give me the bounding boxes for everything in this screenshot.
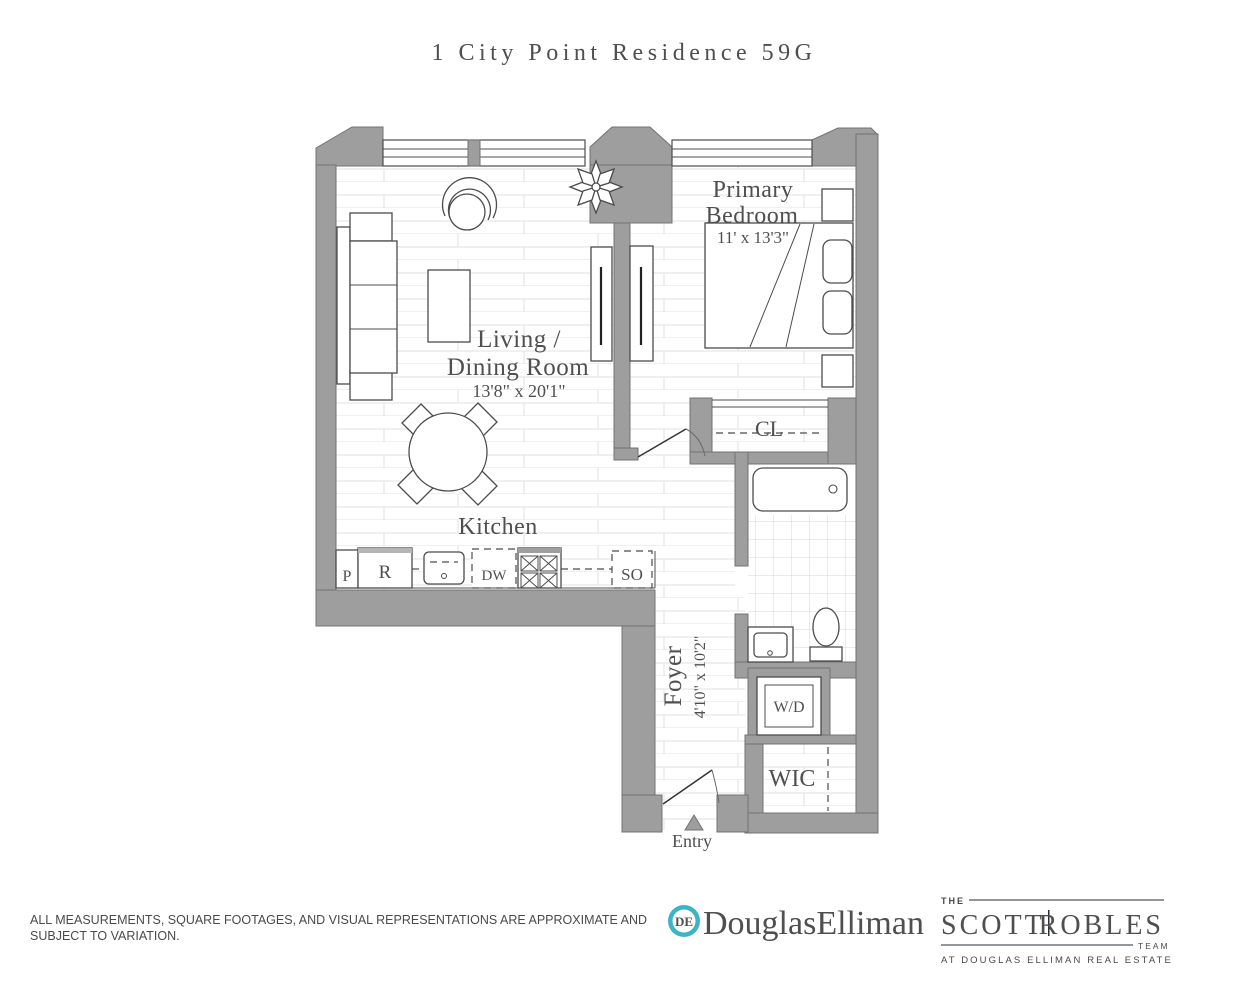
tv-console-living	[591, 247, 612, 361]
stove	[518, 548, 561, 588]
team-name-last: ROBLES	[1039, 910, 1164, 941]
toilet	[810, 608, 842, 661]
page-title: 1 City Point Residence 59G	[432, 40, 817, 66]
primary-bedroom-label-line1: Primary	[713, 177, 794, 203]
wall-living-bedroom-divider	[614, 223, 630, 448]
wall-kitchen-band	[316, 590, 655, 626]
disclaimer-line1: ALL MEASUREMENTS, SQUARE FOOTAGES, AND V…	[30, 913, 647, 927]
disclaimer-line2: SUBJECT TO VARIATION.	[30, 929, 180, 943]
wall-bedroom-door-stub	[614, 448, 638, 460]
living-room-window	[383, 140, 585, 166]
floor-plan-canvas: 1 City Point Residence 59G	[0, 0, 1249, 1000]
pillow	[823, 240, 852, 283]
team-name-first: SCOTT	[941, 910, 1045, 941]
living-dining-label-line2: Dining Room	[447, 354, 589, 381]
foyer-dims: 4'10" x 10'2"	[692, 636, 709, 719]
team-word: TEAM	[1138, 941, 1170, 951]
living-dining-label-line1: Living /	[477, 326, 561, 353]
dining-table	[409, 413, 487, 491]
refrigerator-label: R	[379, 562, 392, 583]
kitchen-sink	[424, 552, 464, 584]
douglas-elliman-logo: DE DouglasElliman	[668, 905, 924, 942]
plant-icon	[570, 161, 622, 213]
scott-robles-team-logo: THE SCOTT ROBLES TEAM AT DOUGLAS ELLIMAN…	[941, 896, 1173, 966]
wall-wic-bottom	[745, 813, 878, 833]
living-dining-dims: 13'8" x 20'1"	[472, 381, 565, 401]
wall-entry-jamb-left	[622, 795, 662, 832]
tv-console-bedroom	[630, 246, 653, 361]
wall-bathroom-left-upper	[735, 452, 748, 566]
closet-label: CL	[755, 416, 783, 441]
dishwasher-label: DW	[482, 568, 508, 584]
team-the: THE	[941, 896, 965, 906]
douglas-elliman-monogram: DE	[675, 914, 693, 929]
wall-right	[856, 134, 878, 833]
primary-bedroom-label-line2: Bedroom	[706, 203, 799, 229]
wic-label: WIC	[769, 766, 816, 792]
closet-opening-header	[712, 400, 828, 407]
wall-entry-jamb-right	[717, 795, 748, 832]
bathroom-sink	[748, 627, 793, 662]
sofa	[337, 213, 397, 400]
stove-oven-label: SO	[621, 565, 643, 584]
wall-top-left-corner	[316, 127, 383, 166]
pillow	[823, 291, 852, 334]
window-mullion	[468, 140, 480, 166]
footer: ALL MEASUREMENTS, SQUARE FOOTAGES, AND V…	[30, 896, 1173, 966]
primary-bedroom-dims: 11' x 13'3"	[717, 228, 789, 247]
bedroom-window	[672, 140, 812, 166]
nightstand	[822, 355, 853, 387]
coffee-table	[428, 270, 470, 342]
washer-dryer-label: W/D	[773, 699, 804, 716]
kitchen-label: Kitchen	[458, 514, 537, 540]
wall-closet-right	[828, 398, 856, 464]
wall-center-pier-top	[590, 127, 672, 166]
bathtub	[753, 468, 847, 511]
wall-bathroom-left-lower	[735, 614, 748, 662]
team-tagline: AT DOUGLAS ELLIMAN REAL ESTATE	[941, 955, 1173, 966]
pantry-label: P	[343, 568, 352, 585]
bedroom-vestibule-floor	[630, 398, 690, 460]
dining-set	[398, 403, 497, 505]
wall-wic-top	[745, 735, 856, 744]
entry-label: Entry	[672, 831, 712, 851]
wall-foyer-left	[622, 626, 655, 795]
wall-left	[316, 165, 336, 592]
floor-plan-page: 1 City Point Residence 59G	[0, 0, 1249, 1000]
nightstand	[822, 189, 853, 221]
wall-closet-bottom	[690, 452, 828, 464]
douglas-elliman-wordmark: DouglasElliman	[703, 905, 924, 942]
foyer-label: Foyer	[660, 645, 687, 706]
